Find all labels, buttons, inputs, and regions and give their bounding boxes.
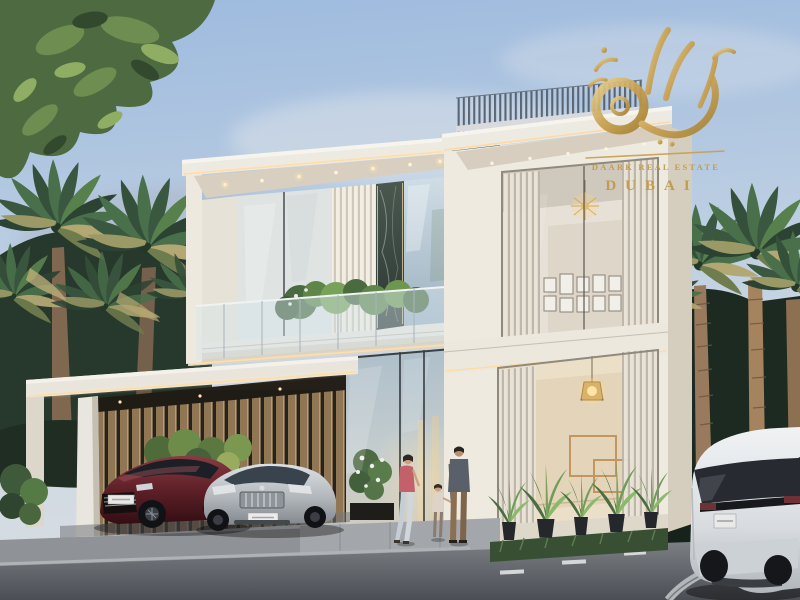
front-grille — [240, 492, 284, 508]
wheel — [138, 500, 166, 528]
right-block — [442, 80, 692, 550]
tail-light — [700, 503, 716, 510]
brand-name-text: DAARK REAL ESTATE — [592, 162, 720, 172]
brand-city-text: DUBAI — [605, 178, 698, 194]
scene-canvas: DAARK REAL ESTATE DUBAI — [0, 0, 800, 600]
villa-render-image: DAARK REAL ESTATE DUBAI — [0, 0, 800, 600]
tail-light — [784, 496, 800, 503]
upper-left-block — [182, 136, 464, 364]
